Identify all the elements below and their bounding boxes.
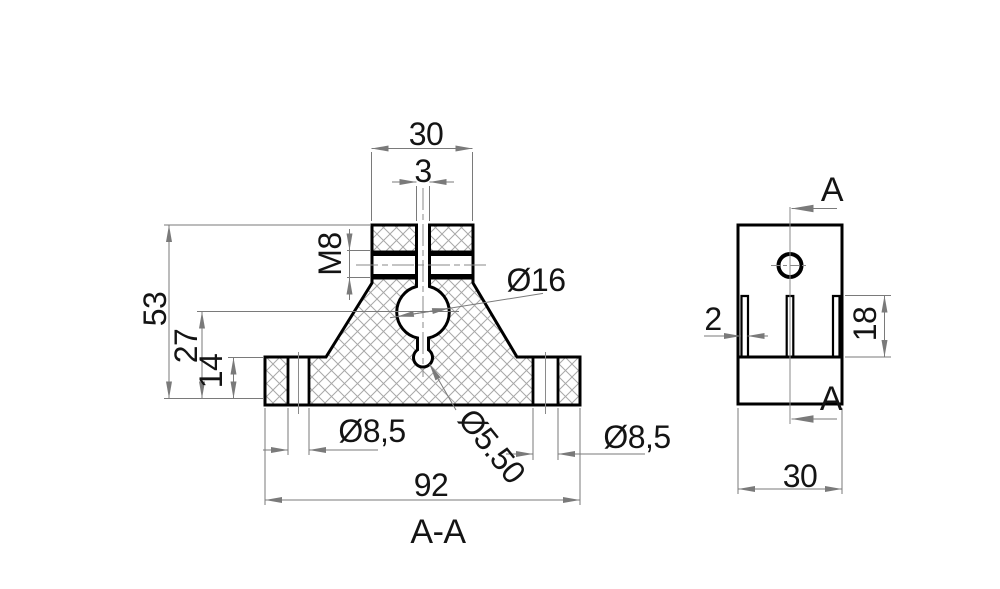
dim-slot-width-label: 3 [414,155,431,187]
thread-callout-label: M8 [314,232,346,275]
dim-slot-depth-label: 18 [849,307,881,342]
dim-side-width-label: 30 [783,460,818,492]
dim-base-width-label: 92 [414,469,449,501]
technical-drawing-page: 30 3 M8 Ø16 53 27 14 Ø8,5 Ø5.50 Ø8,5 92 … [0,0,1000,589]
side-view-centerlines [771,207,809,424]
section-view-geometry [265,188,580,414]
bore-diameter-callout-label: Ø16 [507,264,566,296]
dim-overall-height-label: 53 [139,292,171,327]
section-marker-top-label: A [821,173,843,207]
dim-flange-thickness-label: 14 [195,354,227,389]
flange-hole-diameter-left-label: Ø8,5 [338,415,405,447]
flange-hole-diameter-right-label: Ø8,5 [603,421,670,453]
section-marker-bottom-label: A [820,382,842,416]
side-view-dimensions [704,209,891,495]
section-caption: A-A [410,515,465,549]
section-view-dimensions [164,149,645,506]
dim-side-slot-width-label: 2 [704,303,721,335]
dim-top-width-label: 30 [409,118,444,150]
